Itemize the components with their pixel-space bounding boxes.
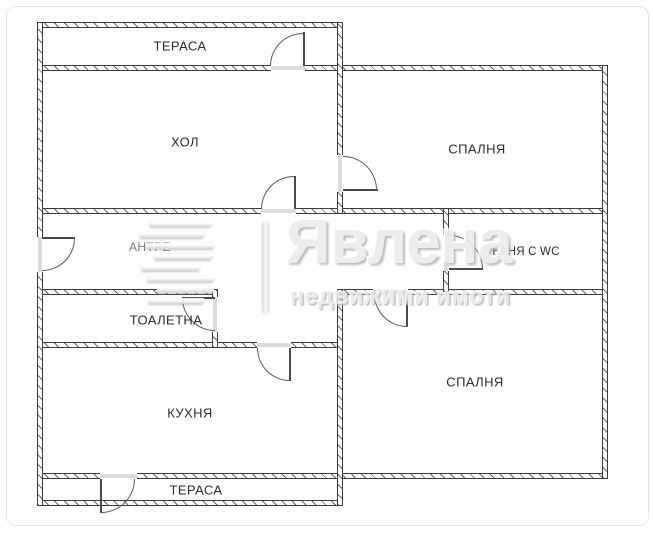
door-sill [257,343,291,347]
room-label-toilet: ТОАЛЕТНА [130,313,203,328]
room-label-kitchen: КУХНЯ [167,406,212,421]
wall [37,289,218,295]
wall [37,208,608,214]
wall [602,65,608,479]
door-leaf [303,32,305,66]
room-label-bedroom-bottom: СПАЛНЯ [446,375,503,390]
wall [337,289,343,506]
wall [37,65,608,71]
door-sill [261,209,296,213]
wall [37,342,343,348]
door-sill [271,66,305,70]
wall [37,500,343,506]
room-label-bedroom-top: СПАЛНЯ [448,142,505,157]
room-label-antre: АНТРЕ [129,240,171,254]
room-label-bath-wc: БАНЯ С WC [492,246,559,258]
room-label-terrace-bottom: ТЕРАСА [170,483,223,498]
door-sill [100,474,137,478]
wall [37,22,343,28]
floorplan-canvas: ТЕРАСА ХОЛ СПАЛНЯ АНТРЕ БАНЯ С WC ТОАЛЕТ… [0,0,653,533]
door-sill [338,155,342,192]
door-sill [444,235,448,271]
door-leaf [294,176,296,209]
room-label-terrace-top: ТЕРАСА [154,39,207,54]
room-label-hall: ХОЛ [171,135,199,150]
image-border [6,6,649,526]
